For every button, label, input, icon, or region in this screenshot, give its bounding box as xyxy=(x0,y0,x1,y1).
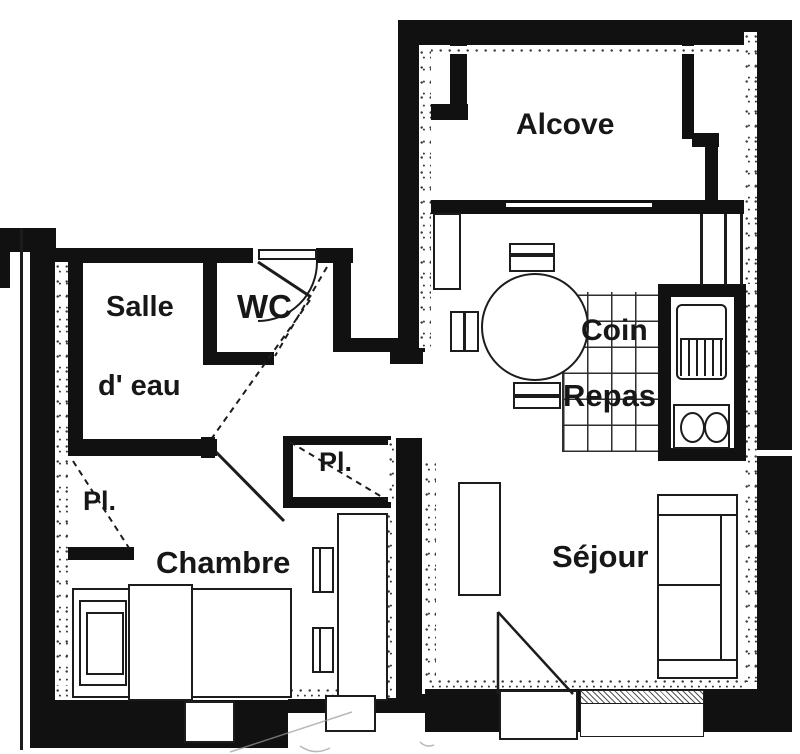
salle-wc-divider-wall xyxy=(203,260,217,359)
left-closet-bottom xyxy=(68,547,134,560)
sofa-back xyxy=(720,514,722,661)
central-wall-foot xyxy=(390,350,423,364)
salle-left-wall xyxy=(68,260,83,453)
dining-chair-left xyxy=(464,311,479,352)
sofa xyxy=(657,494,738,679)
dining-chair-left xyxy=(450,311,465,352)
exterior-wall-left xyxy=(30,230,55,746)
sofa-armrest-top xyxy=(659,514,736,516)
right-wall-notch xyxy=(757,450,792,456)
wall-hatch xyxy=(55,262,68,698)
wall-hatch xyxy=(420,46,756,54)
duct-partition xyxy=(700,214,703,285)
room-label-chambre: Chambre xyxy=(156,547,290,578)
divider-wall-chambre-sejour xyxy=(396,438,422,706)
duct-partition xyxy=(740,214,743,285)
chambre-door-leaf xyxy=(216,452,284,521)
hall-closet-top xyxy=(283,436,391,445)
desk xyxy=(337,513,388,701)
shelf xyxy=(433,213,461,290)
nightstand xyxy=(312,627,334,673)
bed-duvet xyxy=(128,584,193,701)
pencil-scribble xyxy=(300,742,434,752)
floor-plan: Alcove Salle d' eau WC Coin Repas Pl. Pl… xyxy=(0,0,800,754)
balcony xyxy=(580,703,704,737)
wall-hatch xyxy=(419,48,431,348)
exterior-wall-top xyxy=(398,20,792,45)
alcove-right-wall-upper xyxy=(682,44,694,139)
wc-bottom-wall xyxy=(203,352,274,365)
sofa-seat-divider xyxy=(659,584,720,586)
kitchen-counter-drainer xyxy=(676,304,727,380)
alcove-right-wall-lower xyxy=(705,133,718,207)
dining-chair-top-seat xyxy=(509,255,555,272)
room-label-salle-line2: d' eau xyxy=(98,372,181,401)
dining-chair-top-back xyxy=(509,243,555,255)
nightstand xyxy=(312,547,334,593)
dining-chair-bottom-seat xyxy=(513,396,561,409)
window xyxy=(184,701,235,743)
left-boundary-line xyxy=(20,228,23,750)
room-label-repas: Repas xyxy=(563,380,656,411)
burner xyxy=(704,412,729,443)
pillow-inner xyxy=(86,612,124,675)
room-label-salle-line1: Salle xyxy=(106,293,174,322)
wall-hatch xyxy=(388,440,396,502)
wc-right-wall xyxy=(333,248,351,352)
alcove-bottom-opening-line xyxy=(506,203,652,207)
central-wall-upper xyxy=(398,20,419,364)
hall-closet-bottom xyxy=(283,497,391,508)
room-label-pl-hall: Pl. xyxy=(319,449,352,476)
wall-hatch xyxy=(744,214,757,284)
window xyxy=(325,695,376,732)
entry-door-opening xyxy=(499,690,578,740)
bottom-wall-left xyxy=(30,700,288,748)
room-label-coin: Coin xyxy=(581,316,648,346)
nightstand-divider xyxy=(319,549,321,591)
room-label-alcove: Alcove xyxy=(516,110,614,140)
wall-hatch xyxy=(424,460,436,682)
burner xyxy=(680,412,705,443)
room-label-sejour: Séjour xyxy=(552,541,648,572)
neighbor-wall-stub xyxy=(0,228,10,288)
dining-chair-bottom-back xyxy=(513,382,561,396)
exterior-wall-right xyxy=(757,20,792,725)
room-label-pl-left: Pl. xyxy=(83,488,116,515)
window-band xyxy=(580,690,704,704)
dining-table xyxy=(481,273,589,381)
storage-unit xyxy=(458,482,501,596)
room-label-wc: WC xyxy=(237,290,292,323)
kitchen-hob xyxy=(673,404,730,449)
nightstand-divider xyxy=(319,629,321,671)
door-hinge-block xyxy=(201,437,215,458)
salle-bottom-wall xyxy=(68,439,217,456)
shaft-bottom-wall xyxy=(348,338,425,352)
drainer-stripes xyxy=(680,338,723,376)
sofa-armrest-bottom xyxy=(659,659,736,661)
wc-door-panel xyxy=(258,249,317,260)
duct-partition xyxy=(724,214,727,285)
